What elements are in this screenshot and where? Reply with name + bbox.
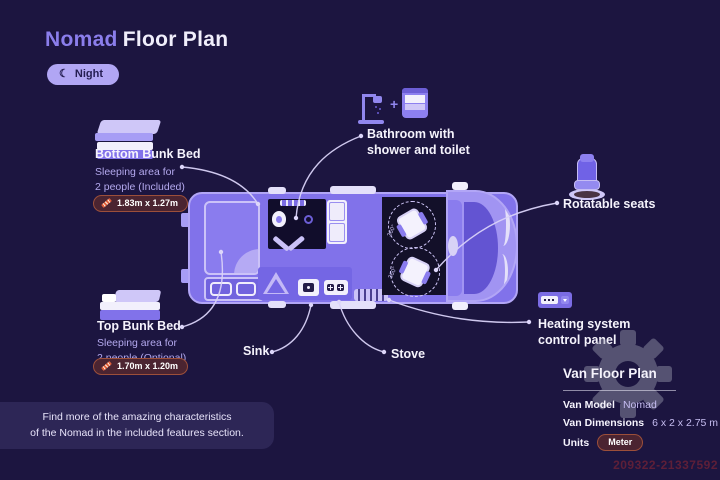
- info-row-model: Van Model Nomad: [563, 399, 657, 411]
- rotation-degree-label: 360°: [388, 266, 399, 280]
- roof-rail: [268, 301, 286, 308]
- bench-seat: [204, 277, 264, 301]
- info-panel-divider: [563, 390, 676, 391]
- kitchen-counter: [258, 267, 352, 300]
- info-row-units: Units Meter: [563, 434, 643, 451]
- watermark-id: 209322-21337592: [613, 458, 718, 472]
- top-bunk-title: Top Bunk Bed: [97, 319, 181, 333]
- toilet-icon: [402, 88, 428, 118]
- wardrobe-cabinet: [327, 200, 347, 244]
- moon-icon: ☾: [59, 69, 69, 80]
- rotatable-seat-zone: 360°: [390, 247, 440, 297]
- info-panel-title: Van Floor Plan: [563, 366, 657, 381]
- stove-unit: [324, 280, 348, 295]
- page-title: NomadFloor Plan: [45, 28, 228, 52]
- stove-label: Stove: [391, 347, 425, 361]
- side-mirror: [452, 302, 468, 310]
- rotatable-seat-icon: [567, 154, 607, 200]
- roof-rail: [268, 187, 286, 194]
- night-mode-label: Night: [75, 68, 103, 80]
- top-bunk-dimension-badge: 1.70m x 1.20m: [93, 358, 188, 375]
- floor-plan-canvas: NomadFloor Plan ☾ Night: [0, 0, 720, 480]
- bottom-bunk-dimension-badge: 1.83m x 1.27m: [93, 195, 188, 212]
- bathroom-area: [268, 199, 326, 249]
- night-mode-toggle[interactable]: ☾ Night: [47, 64, 119, 85]
- bottom-bunk-subtitle: Sleeping area for 2 people (Included): [95, 165, 185, 194]
- footer-note: Find more of the amazing characteristics…: [0, 402, 274, 449]
- sink-unit: [298, 279, 319, 296]
- roof-rail: [330, 301, 376, 309]
- rotation-degree-label: 360°: [387, 224, 398, 238]
- plus-icon: +: [390, 96, 398, 112]
- info-row-dimensions: Van Dimensions 6 x 2 x 2.75 m: [563, 417, 718, 429]
- bed-area: [204, 201, 260, 275]
- rotatable-seats-label: Rotatable seats: [563, 197, 655, 211]
- cab-floor-area: 360° 360°: [382, 197, 446, 295]
- sink-label: Sink: [243, 344, 269, 358]
- bathroom-label: Bathroom with shower and toilet: [367, 126, 470, 159]
- heating-panel-icon: [538, 292, 572, 308]
- shower-icon: [358, 86, 386, 124]
- units-meter-badge[interactable]: Meter: [597, 434, 643, 451]
- van-floor-plan-illustration: 360° 360°: [180, 185, 525, 310]
- page-title-accent: Nomad: [45, 28, 118, 51]
- toilet-topview: [272, 211, 286, 227]
- bathroom-control-strip: [280, 200, 306, 206]
- windshield: [464, 202, 498, 294]
- ruler-icon: [101, 361, 112, 371]
- swivel-seat: [399, 255, 432, 289]
- shower-head-topview: [304, 215, 313, 224]
- side-mirror: [452, 182, 468, 190]
- bottom-bunk-title: Bottom Bunk Bed: [95, 147, 201, 161]
- ruler-icon: [101, 198, 112, 208]
- rotatable-seat-zone: 360°: [388, 201, 436, 249]
- roof-rail: [330, 186, 376, 194]
- steering-wheel: [448, 236, 458, 256]
- swivel-seat: [395, 207, 429, 242]
- page-title-rest: Floor Plan: [123, 28, 229, 51]
